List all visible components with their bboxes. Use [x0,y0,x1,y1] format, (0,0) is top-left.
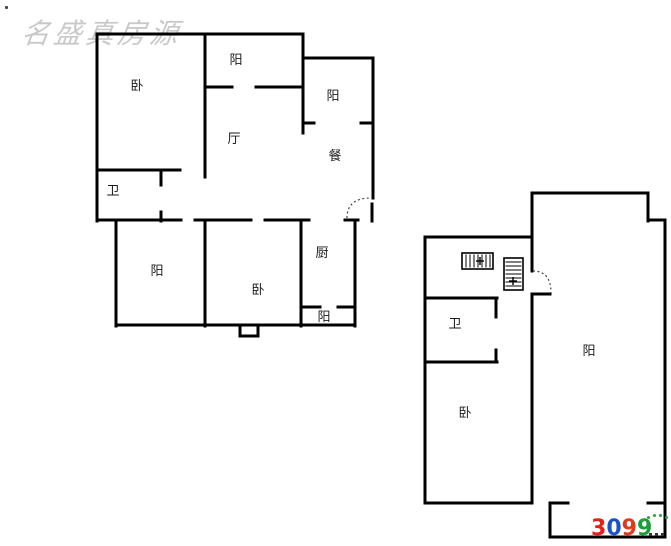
logo-digit: 9 [622,517,637,541]
logo-digit: 0 [606,517,621,541]
logo-tail-mark [649,533,652,536]
logo-arc-dot [641,519,644,522]
logo-arc-dot [665,516,668,519]
floorplan-unit-a: 卧阳阳厅餐卫阳卧厨阳 [97,34,373,336]
room-label: 卫 [106,183,119,198]
room-label: 阳 [150,263,163,278]
room-label: 阳 [582,343,595,358]
room-label: 卧 [458,405,471,420]
logo-tail-mark [655,533,658,536]
floorplan-svg: 卧阳阳厅餐卫阳卧厨阳卫卧阳 [0,0,671,546]
logo-digit: 9 [637,517,652,541]
room-label: 厨 [315,245,328,260]
logo-arc-dot [659,514,662,517]
site-logo: 3099 [591,517,652,543]
room-label: 餐 [328,148,341,163]
door-swing-arc [533,271,551,293]
room-label: 阳 [229,52,242,67]
room-label: 卧 [251,282,264,297]
floorplan-unit-b: 卫卧阳 [425,193,665,537]
room-label: 厅 [227,131,240,146]
room-label: 阳 [326,88,339,103]
room-label: 卧 [130,78,143,93]
door-swing-arc [347,198,371,218]
room-label: 卫 [448,316,461,331]
logo-digit: 3 [591,517,606,541]
stair-window-symbol [504,258,523,290]
logo-tail-mark [661,533,664,536]
logo-arc-dot [647,516,650,519]
stair-window-symbol [462,253,493,269]
room-label: 阳 [317,309,330,324]
logo-arc-dot [653,514,656,517]
